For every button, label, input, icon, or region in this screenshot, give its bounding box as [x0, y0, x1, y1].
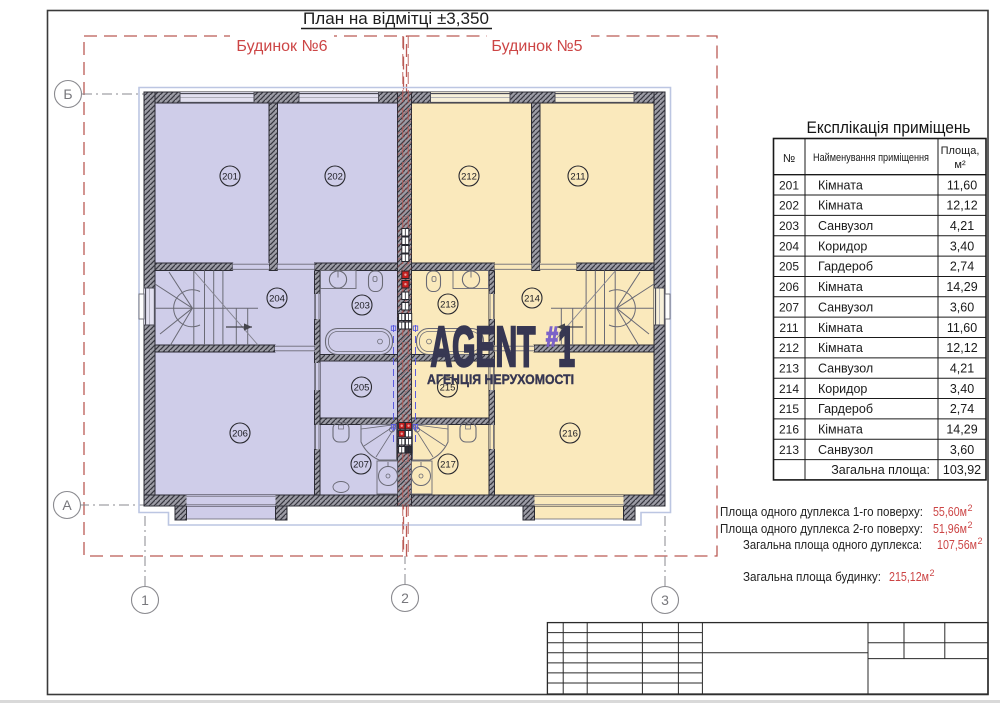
- svg-text:1: 1: [141, 592, 149, 608]
- svg-text:12,12: 12,12: [946, 341, 977, 355]
- svg-text:#: #: [546, 321, 558, 352]
- svg-text:Гардероб: Гардероб: [818, 402, 873, 416]
- svg-text:Будинок №6: Будинок №6: [236, 38, 327, 55]
- svg-text:Кімната: Кімната: [818, 178, 863, 192]
- svg-text:Кімната: Кімната: [818, 280, 863, 294]
- svg-text:211: 211: [779, 321, 798, 335]
- svg-text:205: 205: [354, 383, 370, 394]
- svg-text:Будинок №5: Будинок №5: [491, 38, 582, 55]
- svg-text:3,60: 3,60: [950, 443, 974, 457]
- svg-text:217: 217: [440, 460, 456, 471]
- svg-text:14,29: 14,29: [946, 423, 977, 437]
- svg-text:212: 212: [779, 341, 799, 355]
- svg-text:216: 216: [779, 423, 799, 437]
- svg-text:3,40: 3,40: [950, 382, 974, 396]
- svg-text:Б: Б: [63, 86, 72, 102]
- svg-text:2: 2: [968, 520, 973, 530]
- svg-text:Кімната: Кімната: [818, 321, 863, 335]
- svg-text:Санвузол: Санвузол: [818, 362, 873, 376]
- svg-text:AGENT: AGENT: [431, 315, 536, 379]
- svg-text:Площа одного дуплекса 2-го пов: Площа одного дуплекса 2-го поверху:: [720, 521, 923, 536]
- svg-text:213: 213: [779, 443, 799, 457]
- svg-text:Кімната: Кімната: [818, 341, 863, 355]
- svg-text:203: 203: [779, 219, 799, 233]
- svg-text:Експлікація приміщень: Експлікація приміщень: [807, 119, 971, 137]
- svg-text:205: 205: [779, 260, 799, 274]
- svg-text:212: 212: [461, 172, 477, 183]
- svg-text:2: 2: [978, 536, 983, 546]
- svg-text:2,74: 2,74: [950, 260, 974, 274]
- svg-text:2: 2: [930, 568, 935, 578]
- svg-text:215,12м: 215,12м: [889, 569, 929, 584]
- svg-text:Площа,: Площа,: [941, 145, 980, 157]
- svg-text:А: А: [62, 497, 72, 513]
- svg-text:204: 204: [269, 294, 285, 305]
- svg-text:203: 203: [354, 301, 370, 312]
- svg-text:3: 3: [661, 592, 669, 608]
- svg-text:204: 204: [779, 239, 799, 253]
- svg-text:12,12: 12,12: [946, 199, 977, 213]
- svg-text:Загальна площа будинку:: Загальна площа будинку:: [743, 569, 881, 584]
- svg-text:АГЕНЦІЯ НЕРУХОМОСТІ: АГЕНЦІЯ НЕРУХОМОСТІ: [427, 372, 574, 387]
- svg-text:Санвузол: Санвузол: [818, 300, 873, 314]
- svg-text:2: 2: [968, 503, 973, 513]
- svg-text:Площа одного дуплекса 1-го пов: Площа одного дуплекса 1-го поверху:: [720, 504, 923, 519]
- svg-text:1: 1: [558, 315, 575, 379]
- svg-text:213: 213: [440, 300, 456, 311]
- svg-text:207: 207: [353, 460, 369, 471]
- svg-text:Найменування приміщення: Найменування приміщення: [813, 152, 929, 164]
- svg-text:216: 216: [562, 429, 578, 440]
- svg-text:Загальна площа:: Загальна площа:: [831, 463, 930, 477]
- svg-text:214: 214: [524, 294, 540, 305]
- svg-text:м²: м²: [954, 159, 966, 171]
- svg-text:201: 201: [779, 178, 799, 192]
- svg-text:Коридор: Коридор: [818, 382, 867, 396]
- svg-text:214: 214: [779, 382, 799, 396]
- svg-text:207: 207: [779, 300, 799, 314]
- svg-text:11,60: 11,60: [947, 178, 977, 192]
- svg-text:11,60: 11,60: [947, 321, 977, 335]
- svg-text:206: 206: [232, 429, 248, 440]
- svg-text:14,29: 14,29: [946, 280, 977, 294]
- svg-text:202: 202: [779, 199, 799, 213]
- svg-text:Санвузол: Санвузол: [818, 443, 873, 457]
- svg-text:2: 2: [401, 590, 409, 606]
- svg-text:206: 206: [779, 280, 799, 294]
- svg-text:Коридор: Коридор: [818, 239, 867, 253]
- svg-text:План на відмітці ±3,350: План на відмітці ±3,350: [303, 9, 489, 28]
- svg-text:202: 202: [327, 172, 343, 183]
- svg-text:4,21: 4,21: [950, 219, 974, 233]
- svg-text:Санвузол: Санвузол: [818, 219, 873, 233]
- svg-text:3,60: 3,60: [950, 300, 974, 314]
- svg-text:213: 213: [779, 362, 799, 376]
- svg-text:107,56м: 107,56м: [937, 537, 977, 552]
- svg-text:51,96м: 51,96м: [933, 521, 967, 536]
- svg-text:3,40: 3,40: [950, 239, 974, 253]
- svg-text:№: №: [783, 153, 795, 165]
- svg-text:Кімната: Кімната: [818, 423, 863, 437]
- svg-text:211: 211: [570, 172, 585, 183]
- svg-text:Загальна площа одного дуплекса: Загальна площа одного дуплекса:: [743, 537, 922, 552]
- svg-text:Кімната: Кімната: [818, 199, 863, 213]
- svg-text:103,92: 103,92: [943, 463, 981, 477]
- svg-text:201: 201: [222, 172, 238, 183]
- svg-text:55,60м: 55,60м: [933, 504, 967, 519]
- svg-text:215: 215: [779, 402, 799, 416]
- svg-text:4,21: 4,21: [950, 362, 974, 376]
- svg-text:2,74: 2,74: [950, 402, 974, 416]
- svg-text:Гардероб: Гардероб: [818, 260, 873, 274]
